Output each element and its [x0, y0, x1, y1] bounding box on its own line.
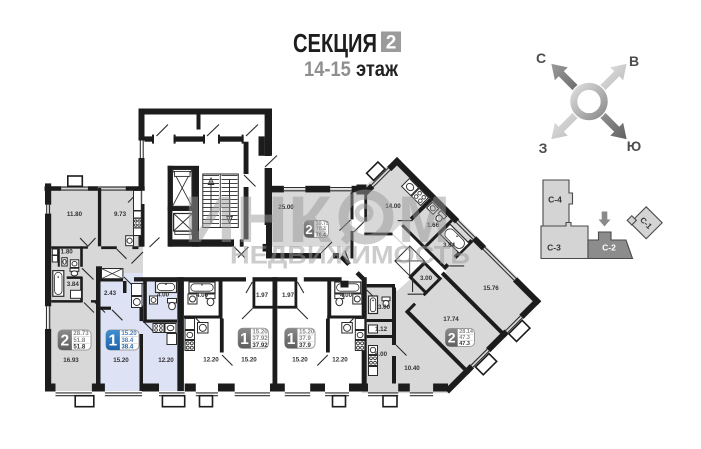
svg-text:1: 1	[287, 331, 296, 348]
svg-text:2.43: 2.43	[104, 290, 117, 297]
svg-text:14-15 этаж: 14-15 этаж	[304, 58, 399, 81]
svg-text:37.92: 37.92	[252, 342, 268, 349]
svg-text:С-2: С-2	[602, 243, 616, 253]
svg-text:37.9: 37.9	[299, 342, 312, 349]
svg-text:11.80: 11.80	[67, 211, 83, 218]
svg-text:Ю: Ю	[627, 138, 641, 154]
svg-text:4.00: 4.00	[340, 292, 353, 299]
svg-text:С-3: С-3	[547, 243, 561, 253]
svg-text:С: С	[536, 50, 546, 66]
svg-text:17.74: 17.74	[443, 316, 459, 323]
svg-text:2: 2	[386, 33, 397, 54]
svg-text:38.4: 38.4	[121, 344, 134, 351]
svg-text:15.20: 15.20	[292, 357, 308, 364]
svg-text:В: В	[629, 53, 639, 69]
svg-text:9.73: 9.73	[114, 211, 127, 218]
svg-text:1.80: 1.80	[61, 249, 74, 256]
svg-text:4.00: 4.00	[157, 292, 170, 299]
svg-text:15.76: 15.76	[483, 285, 499, 292]
svg-text:15.20: 15.20	[241, 357, 257, 364]
svg-text:1.97: 1.97	[282, 292, 295, 299]
svg-text:2: 2	[448, 330, 456, 346]
svg-text:10.40: 10.40	[404, 365, 420, 372]
svg-text:12.20: 12.20	[158, 357, 174, 364]
svg-text:3.00: 3.00	[378, 304, 391, 311]
svg-text:3.84: 3.84	[67, 281, 80, 288]
svg-text:1.97: 1.97	[256, 292, 269, 299]
svg-text:С-4: С-4	[548, 195, 562, 205]
svg-text:4.00: 4.00	[196, 292, 209, 299]
svg-text:НЕДВИЖИМОСТЬ: НЕДВИЖИМОСТЬ	[230, 242, 470, 270]
svg-text:1.12: 1.12	[375, 326, 388, 333]
svg-text:15.20: 15.20	[113, 357, 129, 364]
svg-text:З: З	[539, 140, 548, 156]
svg-text:6.00: 6.00	[375, 351, 388, 358]
svg-text:12.20: 12.20	[332, 357, 348, 364]
svg-text:16.93: 16.93	[63, 357, 79, 364]
svg-text:1: 1	[109, 333, 118, 350]
svg-text:1: 1	[240, 331, 249, 348]
svg-text:СЕКЦИЯ: СЕКЦИЯ	[293, 28, 377, 58]
svg-text:51.8: 51.8	[73, 344, 86, 351]
svg-text:12.20: 12.20	[203, 357, 219, 364]
svg-text:47.3: 47.3	[459, 341, 470, 347]
svg-text:2: 2	[61, 333, 70, 350]
svg-text:3.00: 3.00	[420, 275, 433, 282]
